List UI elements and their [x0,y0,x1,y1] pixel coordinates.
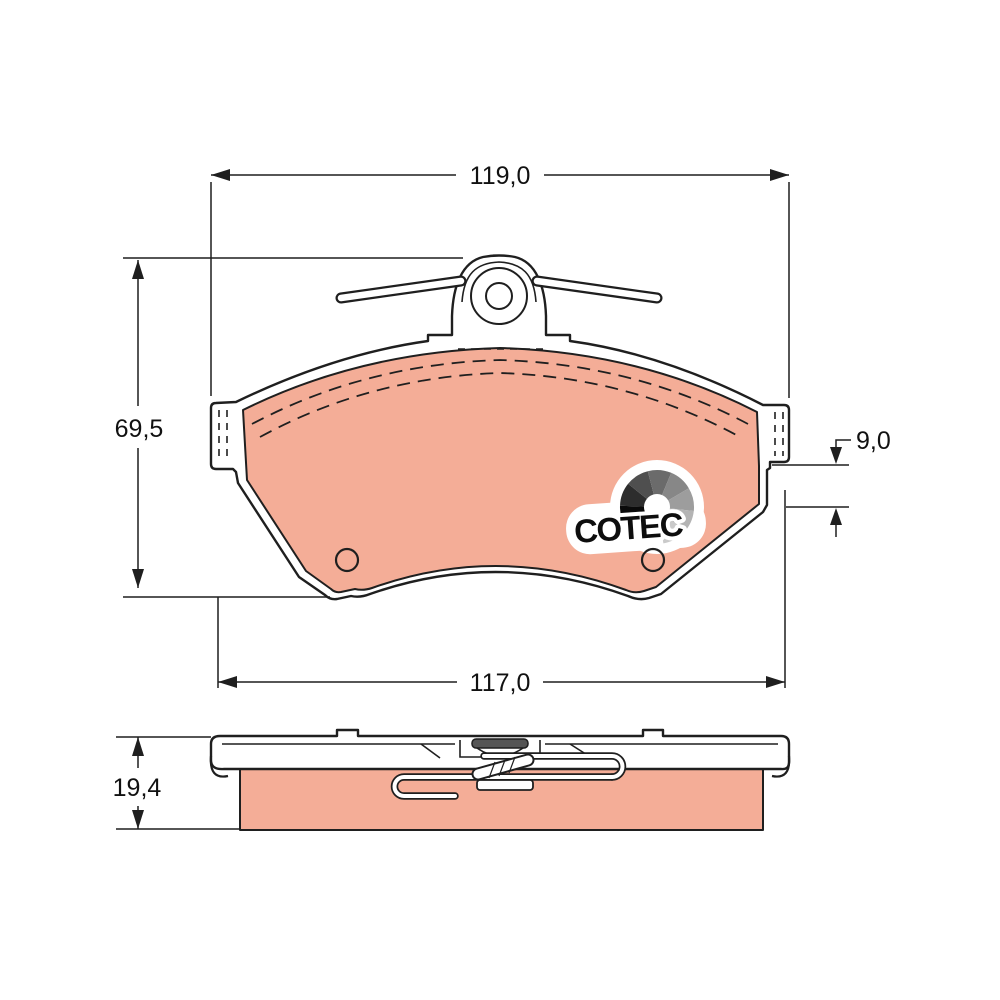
tab-hole [486,283,512,309]
spring-arm-right [537,281,657,298]
spring-arm-left [341,281,461,298]
drawing-canvas: COTEC [0,0,1000,1000]
side-spring-tongue [472,739,528,748]
dimension-label-lower-width: 117,0 [470,669,531,697]
front-view: COTEC [211,256,789,600]
dimension-label-overall-height: 69,5 [115,415,164,443]
side-view [211,730,789,830]
logo-text: COTEC [573,505,684,549]
dimension-label-edge-step: 9,0 [856,427,891,455]
dimension-label-overall-width: 119,0 [470,162,531,190]
technical-drawing: COTEC [0,0,1000,1000]
wire-anchor-plate [477,780,533,790]
dimension-label-side-thickness: 19,4 [113,774,162,802]
